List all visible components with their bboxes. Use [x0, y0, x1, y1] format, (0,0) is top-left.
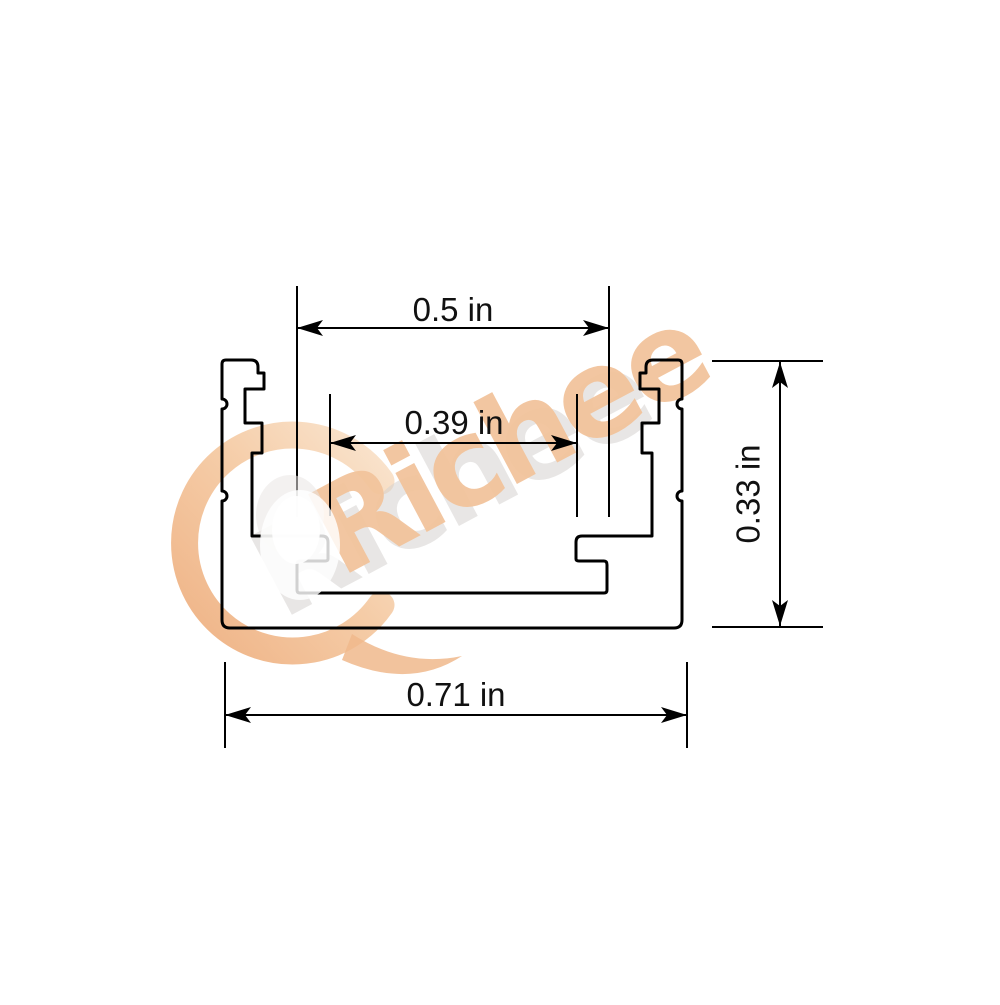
drawing-layer: 0.5 in 0.39 in 0.33 in 0.71 in — [0, 0, 1000, 1000]
dim-label-inner-width: 0.39 in — [404, 404, 503, 441]
dim-label-top-width: 0.5 in — [413, 291, 494, 328]
watermark-gloss-highlight — [256, 475, 340, 600]
page: { "drawing": { "kind": "profile-cross-se… — [0, 0, 1000, 1000]
dim-label-outer-width: 0.71 in — [406, 676, 505, 713]
dim-label-height: 0.33 in — [730, 444, 767, 543]
profile-drawing: 0.5 in 0.39 in 0.33 in 0.71 in — [0, 0, 1000, 1000]
